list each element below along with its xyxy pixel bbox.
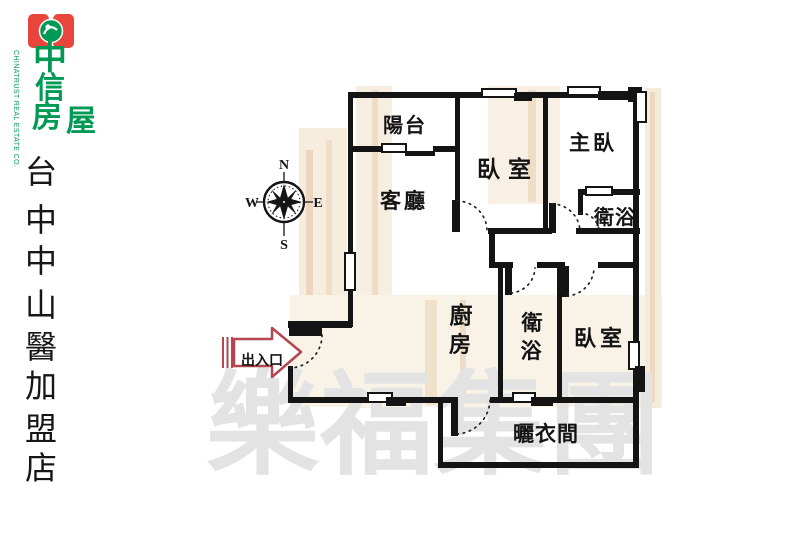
window-master-top — [568, 87, 600, 95]
store-char-7: 盟 — [25, 411, 57, 447]
logo-char-3: 房 — [32, 101, 62, 134]
logo-char-4: 屋 — [66, 105, 96, 138]
logo-company-en: CHINATRUST REAL ESTATE CO. — [12, 50, 19, 167]
store-char-8: 店 — [25, 450, 57, 486]
window-bedroom2-east-panel — [635, 366, 645, 392]
wall-balcony-divider-r — [433, 146, 458, 152]
label-master: 主臥 — [569, 131, 617, 155]
store-char-1: 台 — [25, 154, 57, 190]
wall-bath2-west — [498, 262, 503, 402]
wall-west — [348, 92, 353, 327]
store-char-6: 加 — [25, 368, 57, 404]
wall-bedroom2-west — [557, 262, 562, 402]
door-arc-bath2 — [511, 268, 535, 293]
compass-w: W — [245, 196, 259, 211]
compass-n: N — [279, 158, 289, 173]
door-leaf-drying — [451, 397, 458, 436]
window-master-east — [636, 92, 646, 122]
window-bath1-top — [586, 187, 612, 195]
wall-hall-south-3 — [598, 262, 638, 268]
wall-drying-bottom — [438, 462, 639, 468]
wall-bath1-west — [578, 190, 583, 215]
window-living-west — [345, 253, 355, 290]
store-char-5: 醫 — [25, 329, 57, 365]
door-leaf-bedroom1 — [452, 200, 460, 232]
label-living: 客廳 — [380, 189, 428, 213]
label-balcony: 陽台 — [383, 113, 427, 137]
compass-hub-dot — [283, 201, 285, 203]
label-bath1: 衛浴 — [593, 205, 636, 229]
window-bedroom1-top-panel — [514, 93, 532, 101]
door-leaf-master — [549, 203, 556, 233]
window-bath2-bottom-panel — [531, 397, 553, 406]
wall-entry-west — [288, 366, 293, 402]
wall-drying-west — [438, 400, 443, 468]
floorplan-page: 樂福集團 — [0, 0, 800, 553]
label-bath2-char2: 浴 — [521, 339, 543, 363]
door-leaf-bath2 — [505, 266, 512, 295]
door-leaf-bedroom2 — [562, 266, 569, 297]
wall-bottom-east — [551, 397, 638, 403]
balcony-slider-panel — [405, 151, 435, 156]
wall-bedroom1-west — [455, 92, 460, 202]
wall-entry-top — [288, 321, 352, 328]
entrance-label: 出入口 — [241, 352, 283, 369]
brand-logo: 中 信 房 屋 CHINATRUST REAL ESTATE CO. — [12, 14, 96, 167]
wall-hall-north-l — [488, 228, 552, 234]
store-char-3: 中 — [25, 243, 57, 279]
entrance-bar-1 — [222, 337, 224, 368]
wall-master-west — [543, 92, 548, 232]
window-balcony-slider — [382, 144, 406, 152]
door-leaf-entry — [289, 328, 322, 336]
label-kitchen-char2: 房 — [449, 332, 471, 357]
compass-e: E — [313, 196, 322, 211]
compass-s: S — [280, 238, 288, 253]
gray-watermark-text: 樂福集團 — [206, 364, 662, 489]
wall-bottom-west — [288, 397, 440, 403]
logo-globe-dot — [45, 24, 50, 29]
store-name-column: 台 中 中 山 醫 加 盟 店 — [25, 154, 57, 486]
store-char-2: 中 — [25, 202, 57, 238]
window-bedroom1-top — [482, 89, 516, 97]
label-bedroom1: 臥室 — [477, 156, 539, 182]
window-master-top-panel — [598, 91, 635, 100]
entrance-bar-2 — [227, 337, 229, 368]
label-drying: 曬衣間 — [513, 422, 579, 446]
floorplan-canvas: 樂福集團 — [0, 0, 800, 553]
wall-bottom-mid — [490, 397, 515, 403]
store-char-4: 山 — [25, 287, 57, 323]
window-kitchen-bottom-panel — [386, 397, 406, 406]
window-bedroom2-east — [629, 342, 639, 369]
label-kitchen-char1: 廚 — [450, 302, 473, 328]
entrance-bar-3 — [231, 337, 233, 368]
door-arc-master — [552, 204, 580, 232]
wall-east — [633, 92, 639, 467]
wall-hall-connector — [489, 230, 495, 268]
door-arc-bedroom2 — [567, 268, 594, 296]
label-bedroom2: 臥室 — [574, 326, 626, 351]
label-bath2-char1: 衛 — [521, 311, 543, 335]
door-arc-bedroom1 — [457, 201, 487, 231]
